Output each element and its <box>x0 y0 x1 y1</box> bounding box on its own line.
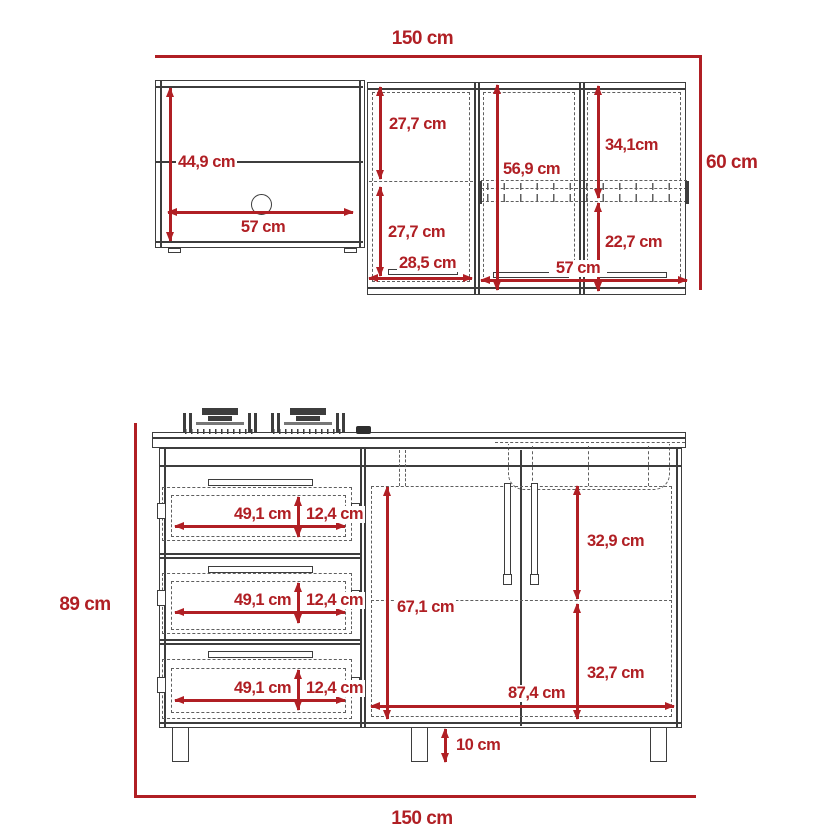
base-door-lower-right-arrow <box>576 604 579 719</box>
plate-rack-top-line <box>481 180 687 181</box>
cooktop-burner-1 <box>183 408 257 434</box>
open-cabinet-left-tab <box>168 248 181 253</box>
cabinet-leg-middle <box>411 728 428 762</box>
drawer-3-height-arrow <box>297 670 300 710</box>
upper-width-dimension-line <box>155 55 702 58</box>
drawer-1-left-slide <box>157 503 166 519</box>
drawer-3-width-label: 49,1 cm <box>232 680 292 697</box>
drawer-separator-2a <box>159 639 360 641</box>
lower-width-label: 150 cm <box>380 809 464 829</box>
plate-rack-ticks-lower <box>487 194 681 202</box>
open-cabinet-height-arrow <box>169 88 172 241</box>
lower-height-dimension-line <box>134 423 137 798</box>
drawer-2-left-slide <box>157 590 166 606</box>
double-door-upper-right-label: 34,1cm <box>603 137 660 154</box>
open-cabinet-top-inner-line <box>156 86 363 88</box>
door1-width-arrow <box>369 277 472 280</box>
plate-rack-left-end <box>478 181 482 204</box>
drawer-2-width-label: 49,1 cm <box>232 592 292 609</box>
double-door-height-arrow <box>496 85 499 290</box>
door-cabinet-bottom-inner-line <box>368 287 685 289</box>
leg-height-arrow <box>444 729 447 762</box>
lower-width-dimension-line <box>134 795 696 798</box>
door1-upper-half-arrow <box>379 87 382 179</box>
door1-lower-half-arrow <box>379 187 382 276</box>
drawer-1-height-arrow <box>297 497 300 537</box>
drawer-2-height-label: 12,4 cm <box>304 592 365 609</box>
plate-rack-right-end <box>685 181 689 204</box>
open-cabinet-right-inner-line <box>359 80 361 248</box>
drawer-1-width-label: 49,1 cm <box>232 506 292 523</box>
body-bottom-inner-line <box>160 722 681 724</box>
sink-rim-dashed-line <box>495 442 685 443</box>
drawer-2-height-arrow <box>297 583 300 623</box>
cooktop-burner-2 <box>271 408 345 434</box>
hinge-dashed-mark-b <box>405 450 406 486</box>
base-door-upper-right-arrow <box>576 486 579 599</box>
upper-door-1-mid-dashed-line <box>369 181 473 182</box>
double-door-height-label: 56,9 cm <box>501 161 562 178</box>
body-right-inner-line <box>676 448 678 728</box>
drawer-1-handle <box>208 479 313 486</box>
plate-rack-ticks-upper <box>487 183 681 190</box>
drawer-separator-2b <box>159 643 360 645</box>
double-door-lower-right-label: 22,7 cm <box>603 234 664 251</box>
open-cabinet-height-label: 44,9 cm <box>176 154 237 171</box>
double-door-lower-right-arrow <box>597 203 600 291</box>
door1-width-label: 28,5 cm <box>397 255 458 272</box>
upper-height-dimension-line <box>699 55 702 290</box>
door-cabinet-top-inner-line <box>368 88 685 90</box>
base-door-right-handle-cap <box>530 574 539 585</box>
upper-width-label: 150 cm <box>383 29 462 49</box>
drawer-2-handle <box>208 566 313 573</box>
drawer-3-width-arrow <box>175 699 345 702</box>
open-cabinet-bottom-inner-line <box>156 241 363 243</box>
double-door-width-arrow <box>481 279 687 282</box>
base-doors-width-label: 87,4 cm <box>506 685 567 702</box>
cabinet-leg-left <box>172 728 189 762</box>
door-divider-1a <box>474 82 476 295</box>
base-door-lower-right-label: 32,7 cm <box>585 665 646 682</box>
drawer-3-handle <box>208 651 313 658</box>
open-cabinet-right-tab <box>344 248 357 253</box>
countertop-inner-line <box>153 437 685 439</box>
cooktop-knob <box>356 426 371 434</box>
open-cabinet-width-label: 57 cm <box>231 219 295 236</box>
base-door-left-handle <box>504 483 511 583</box>
leg-height-label: 10 cm <box>454 737 502 754</box>
base-door-left-handle-cap <box>503 574 512 585</box>
door1-upper-half-label: 27,7 cm <box>387 116 448 133</box>
cabinet-leg-right <box>650 728 667 762</box>
drawer-separator-1b <box>159 557 360 559</box>
body-top-rail-line <box>160 465 681 467</box>
base-door-height-label: 67,1 cm <box>395 599 456 616</box>
drawer-1-height-label: 12,4 cm <box>304 506 365 523</box>
drawer-separator-1a <box>159 553 360 555</box>
drawer-1-width-arrow <box>175 525 345 528</box>
drawer-2-width-arrow <box>175 611 345 614</box>
base-door-right-handle <box>531 483 538 583</box>
base-doors-width-arrow <box>371 705 674 708</box>
drawer-3-left-slide <box>157 677 166 693</box>
drawer-3-height-label: 12,4 cm <box>304 680 365 697</box>
base-door-upper-right-label: 32,9 cm <box>585 533 646 550</box>
upper-height-label: 60 cm <box>704 153 759 173</box>
upper-door-3-handle <box>599 272 667 278</box>
hinge-dashed-mark-a <box>399 450 400 486</box>
door1-lower-half-label: 27,7 cm <box>386 224 447 241</box>
cabinet-dimension-diagram: 150 cm 60 cm 44,9 cm 57 cm <box>0 0 840 840</box>
double-door-upper-right-arrow <box>597 86 600 198</box>
base-door-height-arrow <box>386 487 389 719</box>
open-cabinet-width-arrow <box>168 211 353 214</box>
lower-height-label: 89 cm <box>56 595 114 615</box>
double-door-width-label: 57 cm <box>549 260 607 277</box>
open-cabinet-left-inner-line <box>160 80 162 248</box>
